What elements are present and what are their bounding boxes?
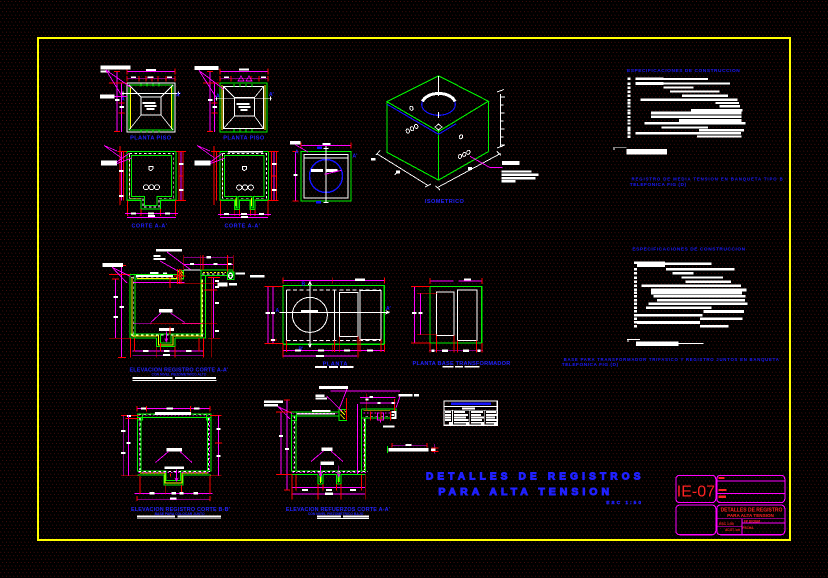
svg-text:CORTE A-A': CORTE A-A' — [224, 224, 260, 230]
svg-text:PARA ALTA TENSION: PARA ALTA TENSION — [438, 486, 613, 498]
svg-text:TELEFONICA FIG (D): TELEFONICA FIG (D) — [630, 182, 687, 188]
svg-text:ESC 1:50: ESC 1:50 — [719, 522, 734, 526]
svg-text:A': A' — [269, 92, 274, 98]
svg-text:CORTE A-A': CORTE A-A' — [131, 224, 167, 230]
svg-text:A': A' — [353, 154, 358, 160]
svg-text:A': A' — [386, 306, 391, 312]
svg-text:PARA ALTA TENSION: PARA ALTA TENSION — [727, 513, 774, 518]
svg-text:A': A' — [176, 93, 181, 99]
svg-text:A: A — [216, 94, 220, 100]
svg-text:BASE PARA TRANSFORMADOR TRIFAS: BASE PARA TRANSFORMADOR TRIFASICO Y REGI… — [564, 357, 780, 362]
svg-text:B: B — [302, 282, 306, 288]
svg-text:BASE PARA COLOCAR JUNTO: BASE PARA COLOCAR JUNTO — [155, 512, 205, 516]
svg-text:ISOMETRICO: ISOMETRICO — [425, 199, 465, 205]
svg-text:REGISTRO DE MEDIA TENSION EN: REGISTRO DE MEDIA TENSION EN BANQUETA TI… — [632, 176, 784, 181]
svg-text:ACOT. cm: ACOT. cm — [725, 528, 740, 532]
svg-text:ESPECIFICACIONES DE CONSTRUC: ESPECIFICACIONES DE CONSTRUCCION — [632, 246, 745, 252]
svg-text:A: A — [295, 150, 299, 156]
svg-text:FECHA: FECHA — [743, 526, 755, 530]
svg-text:TELEFONICA FIG (D): TELEFONICA FIG (D) — [562, 362, 619, 368]
svg-text:CON NIVEL PIEZOMETRICO ALTO: CON NIVEL PIEZOMETRICO ALTO — [152, 373, 207, 377]
svg-text:DETALLES DE REGISTROS: DETALLES DE REGISTROS — [426, 472, 645, 483]
svg-text:ESPECIFICACIONES DE CONSTRUC: ESPECIFICACIONES DE CONSTRUCCION — [627, 68, 740, 74]
svg-text:ESC 1:50: ESC 1:50 — [606, 500, 643, 506]
svg-text:FP DICIEM: FP DICIEM — [744, 519, 760, 523]
svg-text:PLANTA PISO: PLANTA PISO — [130, 136, 172, 142]
svg-text:A: A — [276, 308, 280, 314]
svg-text:PLANTA PISO: PLANTA PISO — [223, 136, 265, 142]
svg-text:IE-07: IE-07 — [677, 483, 715, 500]
svg-text:CON NIVEL PIEZOMETRICO BAJO: CON NIVEL PIEZOMETRICO BAJO — [308, 512, 364, 516]
